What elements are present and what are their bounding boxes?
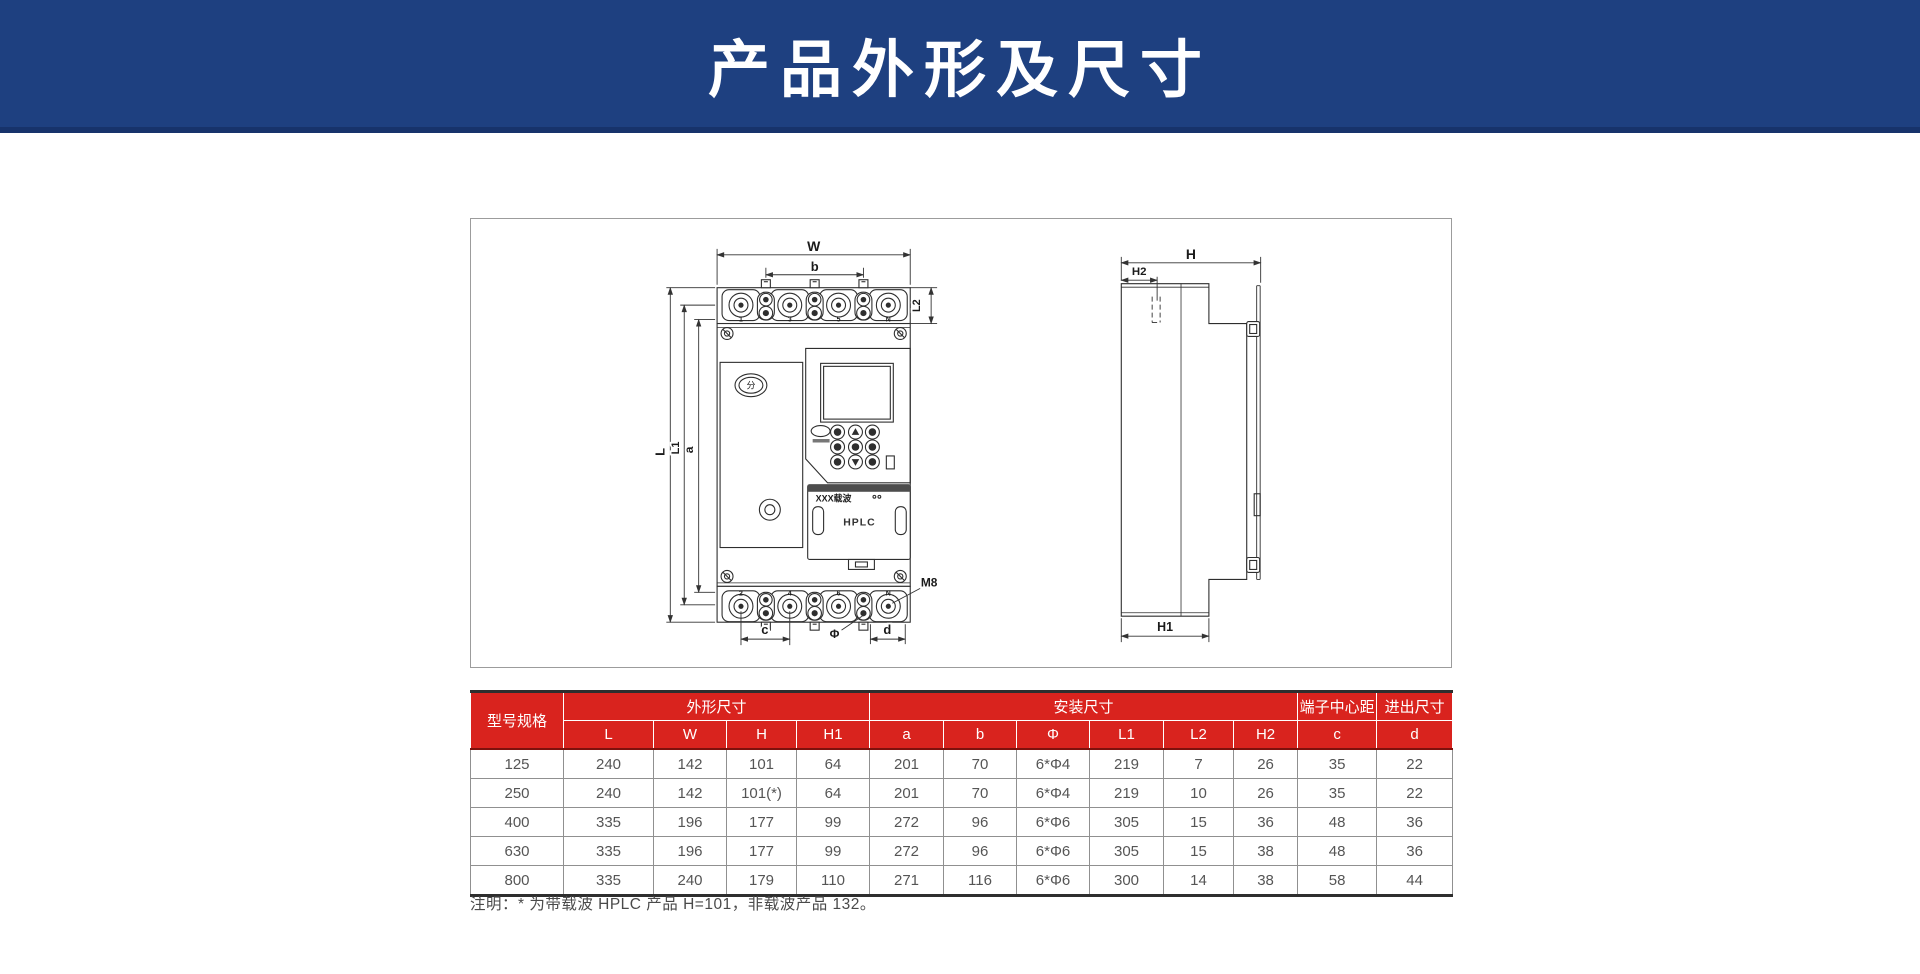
subcol: H2: [1234, 721, 1298, 750]
value-cell: 64: [797, 749, 870, 779]
spec-table-body: 12524014210164201706*Φ421972635222502401…: [471, 749, 1453, 896]
spec-table: 型号规格 外形尺寸 安装尺寸 端子中心距 进出尺寸 L W H H1 a b Φ…: [470, 690, 1453, 897]
terminal-small: [855, 592, 872, 620]
value-cell: 142: [654, 779, 727, 808]
side-view: [1121, 284, 1260, 617]
dim-label-l1: L1: [670, 442, 682, 455]
col-terminal-pitch: 端子中心距: [1298, 692, 1377, 721]
dim-label-d: d: [883, 622, 891, 637]
dim-label-phi: Φ: [830, 627, 840, 641]
value-cell: 36: [1234, 808, 1298, 837]
model-cell: 400: [471, 808, 564, 837]
group-outline-dims: 外形尺寸: [564, 692, 870, 721]
top-pin: [859, 280, 868, 288]
dim-label-h1: H1: [1157, 620, 1173, 634]
terminal-small: [806, 292, 823, 320]
value-cell: 36: [1377, 837, 1453, 866]
terminal-label: 2: [739, 590, 743, 597]
value-cell: 110: [797, 866, 870, 896]
subcol: a: [870, 721, 944, 750]
value-cell: 272: [870, 808, 944, 837]
value-cell: 26: [1234, 749, 1298, 779]
value-cell: 35: [1298, 749, 1377, 779]
screw-icon: [894, 328, 906, 340]
value-cell: 99: [797, 808, 870, 837]
value-cell: 70: [944, 749, 1017, 779]
value-cell: 272: [870, 837, 944, 866]
value-cell: 6*Φ6: [1017, 866, 1090, 896]
dim-label-l2: L2: [911, 299, 923, 312]
value-cell: 201: [870, 779, 944, 808]
screw-icon: [721, 570, 733, 582]
value-cell: 15: [1164, 808, 1234, 837]
page-title: 产品外形及尺寸: [708, 19, 1212, 109]
terminal-small: [757, 592, 774, 620]
value-cell: 6*Φ4: [1017, 749, 1090, 779]
model-cell: 800: [471, 866, 564, 896]
value-cell: 14: [1164, 866, 1234, 896]
value-cell: 38: [1234, 837, 1298, 866]
model-cell: 250: [471, 779, 564, 808]
subcol: b: [944, 721, 1017, 750]
side-profile: [1121, 284, 1246, 617]
dim-label-a: a: [682, 446, 696, 453]
value-cell: 22: [1377, 779, 1453, 808]
value-cell: 116: [944, 866, 1017, 896]
value-cell: 335: [564, 808, 654, 837]
value-cell: 196: [654, 837, 727, 866]
value-cell: 300: [1090, 866, 1164, 896]
value-cell: 35: [1298, 779, 1377, 808]
value-cell: 240: [564, 779, 654, 808]
dim-label-b: b: [811, 259, 819, 274]
terminal-label: 1: [739, 317, 743, 324]
cover-plate: [1247, 286, 1260, 580]
value-cell: 201: [870, 749, 944, 779]
terminal-label: 5: [837, 317, 841, 324]
logo-glyph: 分: [746, 381, 755, 391]
top-pin: [810, 280, 819, 288]
subcol: W: [654, 721, 727, 750]
value-cell: 6*Φ6: [1017, 837, 1090, 866]
terminal-label: 6: [837, 590, 841, 597]
value-cell: 64: [797, 779, 870, 808]
value-cell: 177: [727, 808, 797, 837]
value-cell: 196: [654, 808, 727, 837]
subcol: L1: [1090, 721, 1164, 750]
table-row: 8003352401791102711166*Φ630014385844: [471, 866, 1453, 896]
terminal-label: 4: [788, 590, 792, 597]
dim-label-h: H: [1186, 246, 1196, 262]
front-view: [717, 280, 910, 630]
value-cell: 305: [1090, 837, 1164, 866]
value-cell: 101: [727, 749, 797, 779]
drawing-panel: W b L2 L L1 a c Φ d M8 H H2 H1 1 3 5 N 2…: [470, 218, 1452, 668]
subcol: L: [564, 721, 654, 750]
value-cell: 44: [1377, 866, 1453, 896]
table-row: 63033519617799272966*Φ630515384836: [471, 837, 1453, 866]
terminal-label: 3: [788, 317, 792, 324]
bolt-size-label: M8: [921, 575, 938, 589]
module-name: HPLC: [843, 518, 875, 529]
top-pin: [761, 280, 770, 288]
value-cell: 335: [564, 837, 654, 866]
value-cell: 142: [654, 749, 727, 779]
value-cell: 6*Φ6: [1017, 808, 1090, 837]
table-row: 12524014210164201706*Φ42197263522: [471, 749, 1453, 779]
dim-label-w: W: [807, 238, 821, 254]
subcol: d: [1377, 721, 1453, 750]
subcol: H1: [797, 721, 870, 750]
value-cell: 38: [1234, 866, 1298, 896]
value-cell: 179: [727, 866, 797, 896]
value-cell: 10: [1164, 779, 1234, 808]
terminal-label: N: [886, 317, 891, 324]
dim-label-c: c: [761, 622, 768, 637]
value-cell: 70: [944, 779, 1017, 808]
dimension-drawing: W b L2 L L1 a c Φ d M8 H H2 H1 1 3 5 N 2…: [471, 219, 1451, 667]
subcol: Φ: [1017, 721, 1090, 750]
page-header: 产品外形及尺寸: [0, 0, 1920, 133]
page: { "header": { "title": "产品外形及尺寸" }, "col…: [0, 0, 1920, 974]
col-model: 型号规格: [471, 692, 564, 750]
bottom-pin: [859, 622, 868, 630]
terminal-small: [855, 292, 872, 320]
subcol: H: [727, 721, 797, 750]
bottom-pin: [810, 622, 819, 630]
value-cell: 58: [1298, 866, 1377, 896]
terminal-label: N: [886, 590, 891, 597]
value-cell: 7: [1164, 749, 1234, 779]
terminal-small: [757, 292, 774, 320]
group-install-dims: 安装尺寸: [870, 692, 1298, 721]
value-cell: 6*Φ4: [1017, 779, 1090, 808]
value-cell: 36: [1377, 808, 1453, 837]
model-cell: 630: [471, 837, 564, 866]
table-row: 250240142101(*)64201706*Φ421910263522: [471, 779, 1453, 808]
table-row: 40033519617799272966*Φ630515364836: [471, 808, 1453, 837]
value-cell: 48: [1298, 808, 1377, 837]
value-cell: 48: [1298, 837, 1377, 866]
dim-label-l: L: [652, 448, 667, 456]
spec-table-header: 型号规格 外形尺寸 安装尺寸 端子中心距 进出尺寸 L W H H1 a b Φ…: [471, 692, 1453, 750]
model-cell: 125: [471, 749, 564, 779]
value-cell: 26: [1234, 779, 1298, 808]
screw-icon: [721, 328, 733, 340]
footnote: 注明：* 为带载波 HPLC 产品 H=101，非载波产品 132。: [470, 892, 876, 914]
value-cell: 271: [870, 866, 944, 896]
value-cell: 305: [1090, 808, 1164, 837]
value-cell: 99: [797, 837, 870, 866]
subcol: L2: [1164, 721, 1234, 750]
value-cell: 22: [1377, 749, 1453, 779]
value-cell: 240: [564, 749, 654, 779]
subcol: c: [1298, 721, 1377, 750]
screw-icon: [894, 570, 906, 582]
value-cell: 177: [727, 837, 797, 866]
value-cell: 101(*): [727, 779, 797, 808]
terminal-small: [806, 592, 823, 620]
value-cell: 335: [564, 866, 654, 896]
value-cell: 96: [944, 808, 1017, 837]
dim-label-h2: H2: [1132, 266, 1147, 278]
col-inout: 进出尺寸: [1377, 692, 1453, 721]
module-title: XXX载波: [816, 493, 853, 504]
value-cell: 240: [654, 866, 727, 896]
value-cell: 96: [944, 837, 1017, 866]
value-cell: 15: [1164, 837, 1234, 866]
value-cell: 219: [1090, 749, 1164, 779]
value-cell: 219: [1090, 779, 1164, 808]
